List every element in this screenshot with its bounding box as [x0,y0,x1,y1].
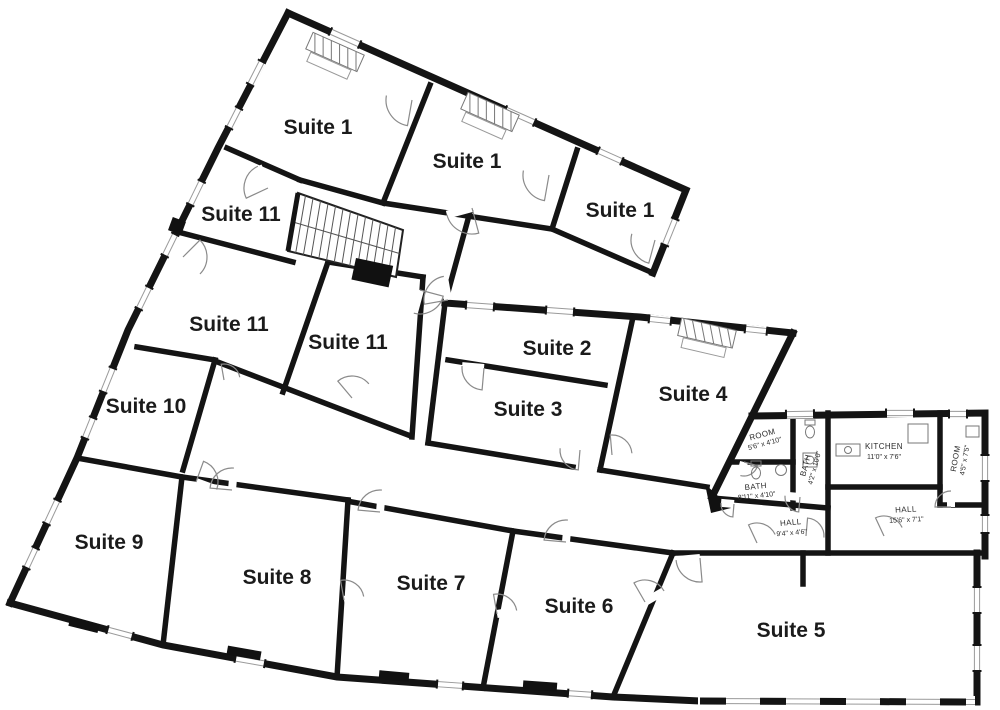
label-suite-7: Suite 7 [397,572,466,595]
svg-text:HALL: HALL [780,517,802,528]
label-hall-small: HALL 9'4" x 4'6" [775,517,808,539]
label-bath-main: BATH 8'11" x 4'10" [736,480,776,502]
label-suite-11-west: Suite 11 [189,313,269,336]
svg-text:KITCHEN: KITCHEN [865,442,903,451]
label-room-east: ROOM 4'5" x 7'5" [948,442,971,476]
label-suite-2: Suite 2 [523,337,592,360]
label-suite-8: Suite 8 [243,566,312,589]
svg-text:BATH: BATH [744,481,767,492]
label-suite-5: Suite 5 [757,619,826,642]
svg-text:9'4" x 4'6": 9'4" x 4'6" [776,529,808,539]
label-suite-1-east: Suite 1 [586,199,655,222]
floor-plan-svg: Suite 1 Suite 1 Suite 1 Suite 11 Suite 1… [0,0,1000,710]
label-suite-11-north: Suite 11 [201,203,281,226]
svg-text:HALL: HALL [895,504,917,514]
label-suite-11-center: Suite 11 [308,331,388,354]
label-suite-6: Suite 6 [545,595,614,618]
label-room-small: ROOM 5'6" x 4'10" [745,426,783,452]
svg-text:11'0" x 7'6": 11'0" x 7'6" [867,454,901,461]
label-suite-4: Suite 4 [659,383,728,406]
label-suite-1-mid: Suite 1 [433,150,502,173]
label-suite-1-main: Suite 1 [284,116,353,139]
floor-plan: Suite 1 Suite 1 Suite 1 Suite 11 Suite 1… [0,0,1000,710]
label-suite-9: Suite 9 [75,531,144,554]
label-kitchen: KITCHEN 11'0" x 7'6" [865,442,903,461]
label-hall-long: HALL 15'6" x 7'1" [888,504,924,525]
label-suite-3: Suite 3 [494,398,563,421]
label-suite-10: Suite 10 [106,395,187,418]
svg-text:15'6" x 7'1": 15'6" x 7'1" [889,516,924,525]
